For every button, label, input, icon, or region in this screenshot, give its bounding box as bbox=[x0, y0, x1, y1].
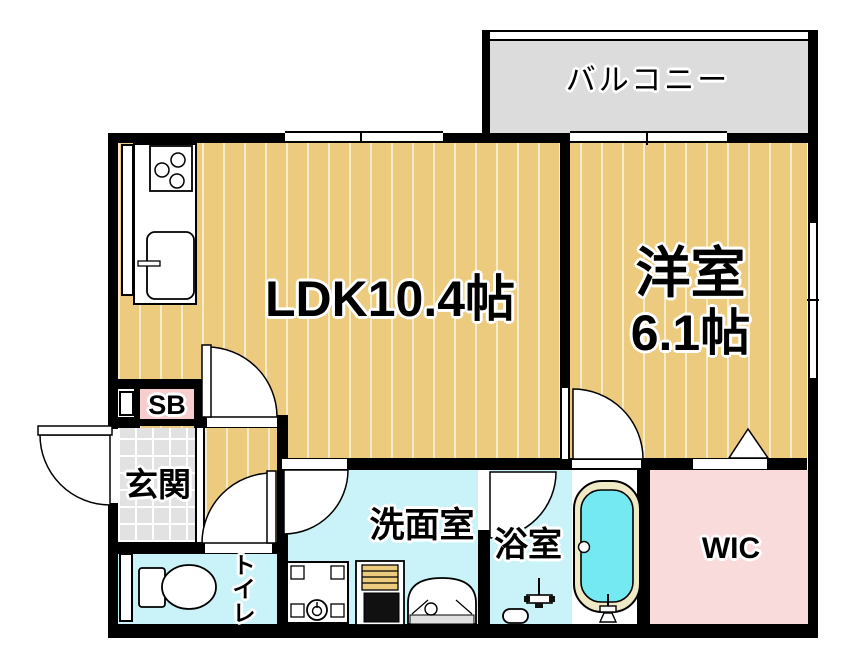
ldk-door-swing bbox=[202, 345, 277, 417]
washroom-label: 洗面室 bbox=[352, 508, 492, 543]
front-door-swing bbox=[38, 426, 112, 505]
stove-icon bbox=[150, 146, 192, 191]
western-room-door-swing bbox=[573, 389, 643, 459]
toilet-icon bbox=[139, 565, 216, 609]
washbasin-icon bbox=[408, 578, 476, 624]
toilet-label-char2: イ bbox=[230, 577, 258, 601]
entrance-label: 玄関 bbox=[118, 468, 198, 501]
shoe-box-label: SB bbox=[140, 392, 194, 419]
ldk-label: LDK10.4帖 bbox=[235, 274, 545, 324]
bath-stool-icon bbox=[503, 609, 528, 623]
western-room-label-line2: 6.1帖 bbox=[588, 308, 793, 358]
western-room-label-line1: 洋室 bbox=[588, 246, 793, 301]
toilet-label: ト イ レ bbox=[230, 553, 258, 625]
toilet-door-swing bbox=[202, 471, 276, 543]
bathroom-label: 浴室 bbox=[488, 528, 568, 562]
western-room-label: 洋室 6.1帖 bbox=[588, 246, 793, 358]
bathtub-icon bbox=[574, 481, 640, 612]
wic-label: WIC bbox=[690, 534, 772, 564]
floor-plan: バルコニー LDK10.4帖 洋室 6.1帖 SB 玄関 ト イ レ 洗面室 浴… bbox=[0, 0, 859, 664]
balcony-label: バルコニー bbox=[500, 66, 796, 96]
toilet-label-char1: ト bbox=[230, 553, 258, 577]
washroom-door-swing bbox=[284, 470, 348, 534]
kitchen-sink-icon bbox=[138, 232, 194, 299]
shower-mixer-icon bbox=[524, 578, 555, 608]
toilet-label-char3: レ bbox=[230, 601, 258, 625]
shelf-unit-icon bbox=[356, 561, 404, 625]
wic-door-triangle-icon bbox=[729, 429, 768, 458]
washing-machine-pan-icon bbox=[287, 562, 348, 623]
